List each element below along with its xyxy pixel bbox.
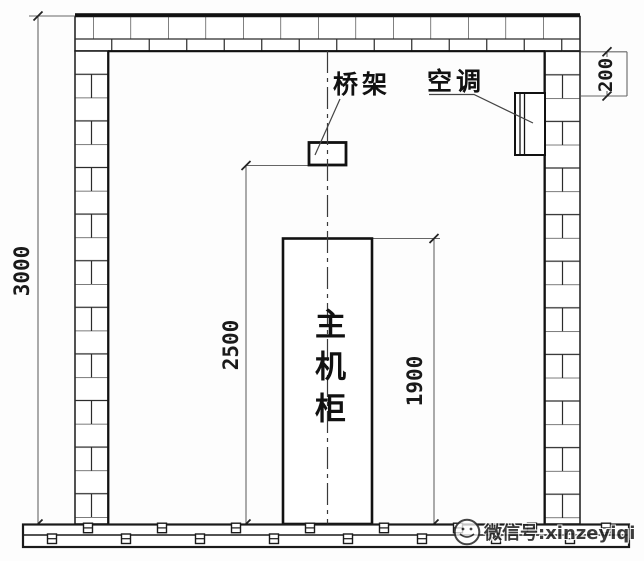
diagram-canvas: 3000 2500 1900 200 桥架 空调 主机柜 微信号:xinzeyi… <box>0 0 644 561</box>
air-conditioner-label: 空调 <box>427 69 485 94</box>
main-cabinet-label: 主机柜 <box>311 308 342 434</box>
watermark: 微信号:xinzeyiqi <box>452 513 635 551</box>
pedestal-clip-icon <box>48 534 57 544</box>
dim-1900-label: 1900 <box>403 341 427 421</box>
pedestal-clip-icon <box>232 523 241 533</box>
watermark-text: 微信号:xinzeyiqi <box>484 519 635 545</box>
pedestal-clip-icon <box>418 534 427 544</box>
dim-2500-label: 2500 <box>219 305 243 385</box>
pedestal-clip-icon <box>158 523 167 533</box>
pedestal-clip-icon <box>380 523 389 533</box>
cable-tray-label: 桥架 <box>333 72 391 97</box>
pedestal-clip-icon <box>196 534 205 544</box>
ac-unit <box>515 93 545 155</box>
dim-3000-label: 3000 <box>10 231 34 311</box>
right-wall <box>545 51 580 524</box>
pedestal-clip-icon <box>270 534 279 544</box>
left-wall <box>75 51 108 524</box>
pedestal-clip-icon <box>306 523 315 533</box>
pedestal-clip-icon <box>344 534 353 544</box>
linework-svg <box>0 0 644 561</box>
pedestal-clip-icon <box>84 523 93 533</box>
wechat-logo-icon <box>452 517 482 547</box>
pedestal-clip-icon <box>122 534 131 544</box>
dim-200-label: 200 <box>594 56 618 94</box>
top-wall <box>75 13 580 51</box>
